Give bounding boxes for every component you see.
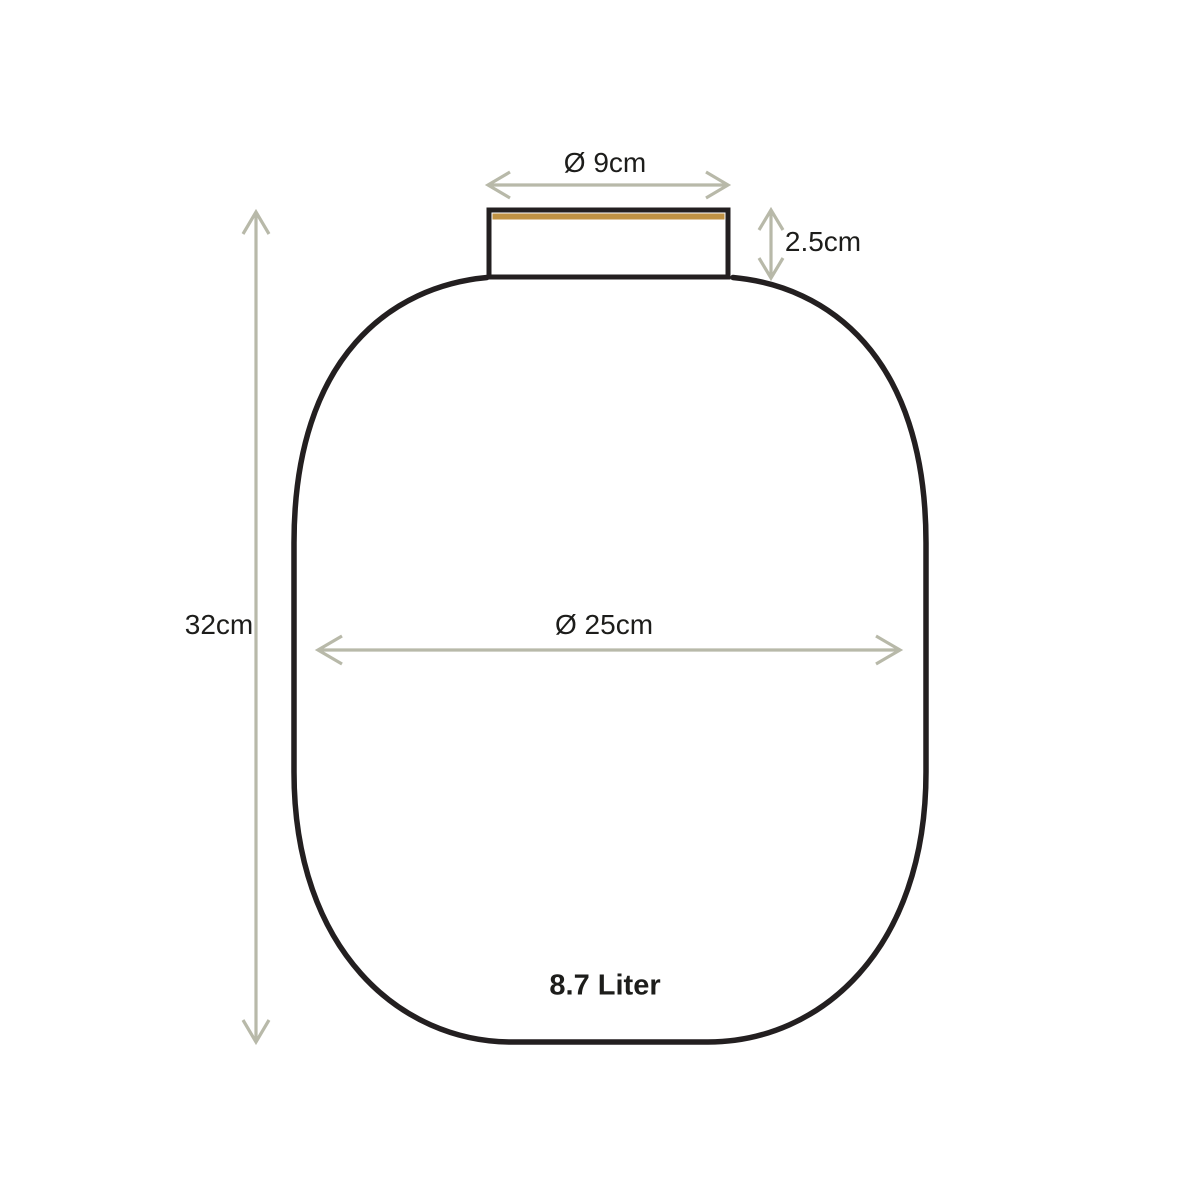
label-total-height: 32cm — [185, 611, 253, 639]
label-body-diameter: Ø 25cm — [555, 611, 653, 639]
dim-arrow-body-diameter — [318, 636, 900, 664]
label-volume: 8.7 Liter — [549, 972, 660, 1001]
neck-gold-rim — [493, 214, 725, 220]
label-neck-height: 2.5cm — [785, 228, 861, 256]
dim-arrow-neck-height — [759, 210, 783, 278]
vase-neck — [489, 210, 728, 277]
vase-body-outline — [294, 278, 926, 1043]
vase-drawing — [0, 0, 1200, 1200]
label-top-diameter: Ø 9cm — [564, 149, 646, 177]
vase-dimension-diagram: Ø 9cm 2.5cm 32cm Ø 25cm 8.7 Liter — [0, 0, 1200, 1200]
